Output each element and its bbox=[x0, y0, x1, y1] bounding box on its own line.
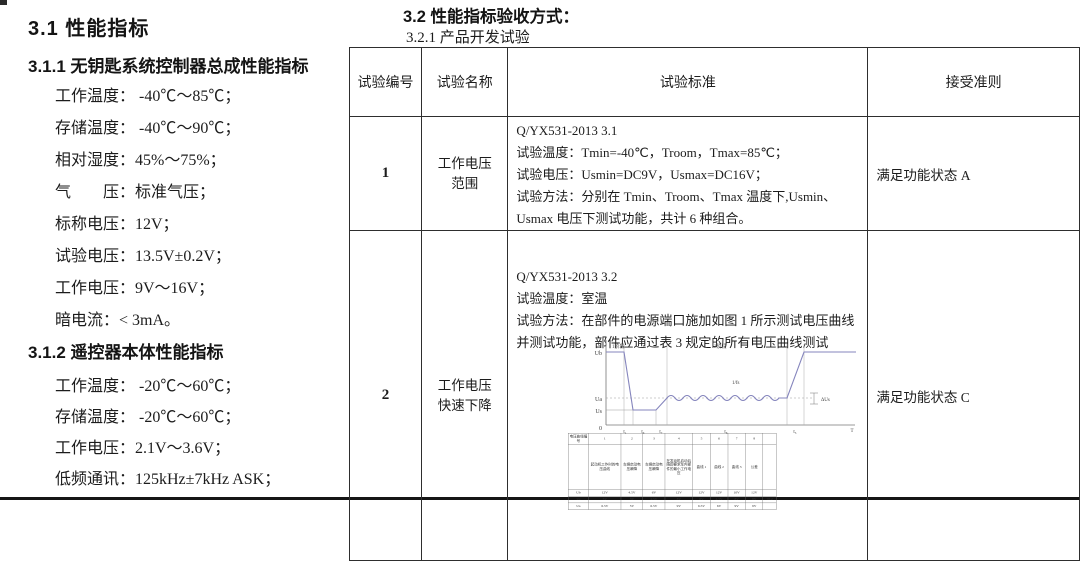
mini-table-cell: 12V bbox=[746, 489, 764, 496]
voltage-curve bbox=[606, 352, 856, 410]
voltage-curve-parameter-table: 电压曲线编号12345678起动机工作时的电压曲线车辆启动电压瞬降车辆启动电压瞬… bbox=[568, 433, 778, 528]
test-standard-cell: Q/YX531-2013 3.1试验温度：Tmin=-40℃，Troom，Tma… bbox=[508, 117, 868, 231]
spec-line: 工作电压：9V～16V； bbox=[55, 274, 355, 306]
spec-line: 标称电压：12V； bbox=[55, 210, 355, 242]
spec-line: 试验电压：13.5V±0.2V； bbox=[55, 242, 355, 274]
mini-table-row: 起动机工作时的电压曲线车辆启动电压瞬降车辆启动电压瞬降在发动机启动后随即要求车内… bbox=[569, 444, 777, 489]
mini-table-row: Ub12V4.5V6V12V12V12V10V12V bbox=[569, 489, 777, 496]
spec-list-remote-key: 工作温度： -20℃～60℃；存储温度： -20℃～60℃；工作电压：2.1V～… bbox=[55, 372, 355, 496]
section-heading-3-2-1: 3.2.1 产品开发试验 bbox=[406, 26, 530, 47]
section-heading-3-1-1: 3.1.1 无钥匙系统控制器总成性能指标 bbox=[28, 52, 309, 77]
mini-table-cell: 5 bbox=[693, 433, 711, 444]
spec-line: 相对湿度：45%～75%； bbox=[55, 146, 355, 178]
mini-table-cell: 10V bbox=[728, 489, 746, 496]
mini-table-cell: 6V bbox=[711, 503, 729, 510]
mini-table-cell: 3 bbox=[643, 433, 665, 444]
mini-table-cell bbox=[569, 444, 590, 489]
mini-table-cell: 12V bbox=[711, 489, 729, 496]
mini-table-cell: 电压曲线编号 bbox=[569, 433, 590, 444]
section-heading-3-2: 3.2 性能指标验收方式： bbox=[403, 3, 579, 27]
mini-table-cell: 9V bbox=[665, 503, 693, 510]
mini-table-cell: 2 bbox=[621, 433, 643, 444]
table-row: 1 工作电压范围 Q/YX531-2013 3.1试验温度：Tmin=-40℃，… bbox=[350, 117, 1080, 231]
standard-line: Q/YX531-2013 3.1 bbox=[516, 120, 859, 142]
mini-table-row: Ua6.5V5V6.5V9V6.5V6V9V9V bbox=[569, 503, 777, 510]
mini-table-cell: 公差 bbox=[746, 444, 764, 489]
standard-line: 试验电压：Usmin=DC9V，Usmax=DC16V； bbox=[516, 164, 859, 186]
mini-table-cell: 曲线 1 bbox=[693, 444, 711, 489]
mini-table-cell bbox=[763, 433, 776, 444]
level-ua-label: Ua bbox=[595, 397, 602, 403]
standard-text: Q/YX531-2013 3.2试验温度：室温试验方法：在部件的电源端口施加如图… bbox=[516, 266, 859, 354]
test-number-cell: 2 bbox=[350, 231, 422, 561]
accept-rule-cell: 满足功能状态 C bbox=[868, 231, 1080, 561]
mini-table-cell: 12V bbox=[665, 489, 693, 496]
header-accept-rule: 接受准则 bbox=[868, 48, 1080, 117]
spec-line: 存储温度： -20℃～60℃； bbox=[55, 403, 355, 434]
table-row: 2 工作电压快速下降 Q/YX531-2013 3.2试验温度：室温试验方法：在… bbox=[350, 231, 1080, 561]
header-test-number: 试验编号 bbox=[350, 48, 422, 117]
phase-1-label: 1阶段 bbox=[612, 343, 625, 350]
standard-line: Q/YX531-2013 3.2 bbox=[516, 266, 859, 288]
mini-table-cell: 曲线 3 bbox=[728, 444, 746, 489]
standard-line: 试验方法：分别在 Tmin、Troom、Tmax 温度下,Usmin、Usmax… bbox=[516, 186, 859, 230]
mini-table-cell: 起动机工作时的电压曲线 bbox=[589, 444, 621, 489]
mini-table-cell: 4 bbox=[665, 433, 693, 444]
phase-2-label: 2阶段 bbox=[714, 343, 727, 350]
level-ub-label: Ub bbox=[595, 351, 602, 357]
mini-table-cell: 6V bbox=[643, 489, 665, 496]
standard-text: Q/YX531-2013 3.1试验温度：Tmin=-40℃，Troom，Tma… bbox=[516, 120, 859, 230]
standard-line: 试验温度：Tmin=-40℃，Troom，Tmax=85℃； bbox=[516, 142, 859, 164]
table-header-row: 试验编号 试验名称 试验标准 接受准则 bbox=[350, 48, 1080, 117]
mini-table-cell: 8 bbox=[746, 433, 764, 444]
test-table: 试验编号 试验名称 试验标准 接受准则 1 工作电压范围 Q/YX531-201… bbox=[349, 47, 1080, 561]
mini-table-cell: 12V bbox=[693, 489, 711, 496]
mini-table-cell: 在发动机启动后随即要求车内部件的最小工作电压 bbox=[665, 444, 693, 489]
scan-corner-smudge bbox=[0, 0, 7, 5]
test-name-cell: 工作电压范围 bbox=[422, 117, 508, 231]
spec-line: 工作温度： -40℃～85℃； bbox=[55, 82, 355, 114]
mini-table-cell bbox=[763, 489, 776, 496]
test-standard-cell: Q/YX531-2013 3.2试验温度：室温试验方法：在部件的电源端口施加如图… bbox=[508, 231, 868, 561]
mini-table-cell: Ub bbox=[569, 489, 590, 496]
spec-line: 气 压：标准气压； bbox=[55, 178, 355, 210]
mini-table-cell: 6 bbox=[711, 433, 729, 444]
spec-line: 工作温度： -20℃～60℃； bbox=[55, 372, 355, 403]
mini-table-cell: 1 bbox=[589, 433, 621, 444]
y-axis-label: U bbox=[598, 342, 603, 348]
header-test-standard: 试验标准 bbox=[508, 48, 868, 117]
mini-table-cell: 9V bbox=[746, 503, 764, 510]
mini-table-cell: 4.5V bbox=[621, 489, 643, 496]
test-number-cell: 1 bbox=[350, 117, 422, 231]
accept-rule-cell: 满足功能状态 A bbox=[868, 117, 1080, 231]
mini-table-cell: 6.5V bbox=[589, 503, 621, 510]
spec-line: 低频通讯：125kHz±7kHz ASK； bbox=[55, 465, 355, 496]
level-us-label: Us bbox=[596, 409, 603, 415]
header-test-name: 试验名称 bbox=[422, 48, 508, 117]
spec-list-keyless-controller: 工作温度： -40℃～85℃；存储温度： -40℃～90℃；相对湿度：45%～7… bbox=[55, 82, 355, 338]
spec-line: 工作电压：2.1V～3.6V； bbox=[55, 434, 355, 465]
section-heading-3-1: 3.1 性能指标 bbox=[28, 12, 149, 41]
section-heading-3-1-2: 3.1.2 遥控器本体性能指标 bbox=[28, 338, 224, 363]
delta-u-label: ΔUs bbox=[821, 398, 830, 403]
mini-table-cell: 曲线 2 bbox=[711, 444, 729, 489]
mini-table-cell: Ua bbox=[569, 503, 590, 510]
ripple-frequency-label: 1/fs bbox=[732, 381, 740, 386]
mini-table-row: 电压曲线编号12345678 bbox=[569, 433, 777, 444]
mini-table-cell: 车辆启动电压瞬降 bbox=[621, 444, 643, 489]
standard-line: 试验温度：室温 bbox=[516, 288, 859, 310]
mini-table-cell: 7 bbox=[728, 433, 746, 444]
mini-table-cell: 车辆启动电压瞬降 bbox=[643, 444, 665, 489]
spec-line: 暗电流：< 3mA。 bbox=[55, 306, 355, 338]
mini-table-cell: 9V bbox=[728, 503, 746, 510]
standard-line: 试验方法：在部件的电源端口施加如图 1 所示测试电压曲线并测试功能，部件应通过表… bbox=[516, 310, 859, 354]
tick-t5: t₅ bbox=[794, 430, 797, 435]
mini-table-cell bbox=[763, 444, 776, 489]
mini-table-cell: 12V bbox=[589, 489, 621, 496]
spec-line: 存储温度： -40℃～90℃； bbox=[55, 114, 355, 146]
test-name-cell: 工作电压快速下降 bbox=[422, 231, 508, 561]
mini-table-cell: 5V bbox=[621, 503, 643, 510]
mini-table-cell: 6.5V bbox=[693, 503, 711, 510]
x-axis-end-label: T bbox=[851, 429, 854, 434]
left-spec-panel: 3.1 性能指标 3.1.1 无钥匙系统控制器总成性能指标 工作温度： -40℃… bbox=[28, 0, 358, 500]
mini-table-cell bbox=[763, 503, 776, 510]
mini-table-cell: 6.5V bbox=[643, 503, 665, 510]
origin-label: 0 bbox=[599, 426, 602, 432]
